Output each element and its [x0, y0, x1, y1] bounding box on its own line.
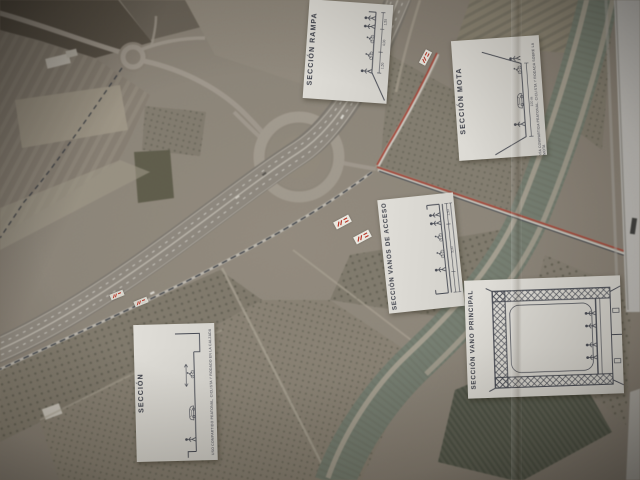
roadway-section-drawing — [146, 323, 209, 461]
truss-outline — [486, 284, 624, 392]
main-span-truss-drawing — [477, 275, 624, 398]
cyclist-icon — [513, 66, 521, 74]
pedestrian-icon — [435, 267, 446, 272]
pedestrian-icon — [430, 221, 441, 226]
inset-seccion: SECCIÓN USO COMPARTIDO PEATONAL, CICLIST… — [133, 323, 218, 462]
pedestrian-icon — [585, 311, 596, 316]
pedestrian-icon — [585, 324, 596, 329]
access-span-section-drawing: 1,50 5,00 — [390, 192, 465, 312]
cyclist-icon — [365, 51, 373, 59]
height-arrow — [184, 364, 188, 386]
pedestrian-icon — [514, 122, 525, 127]
aerial-plan-photo: SECCIÓN RAMPA 1,50 4,00 1,50 SECCIÓN MOT… — [0, 0, 640, 480]
pedestrian-icon — [364, 16, 375, 21]
dimension-label: 5,00 — [450, 246, 455, 253]
inset-seccion-mota: SECCIÓN MOTA 100 m VÍA COMPARTIDA PEATON… — [451, 35, 547, 161]
pedestrian-icon — [586, 355, 597, 360]
cyclist-icon — [187, 370, 194, 378]
cyclist-icon — [436, 250, 444, 258]
pedestrian-icon — [586, 342, 597, 347]
dimension-label: 1,50 — [384, 19, 388, 26]
dimension-label: 1,50 — [446, 209, 451, 216]
cyclist-icon — [435, 233, 443, 241]
inset-seccion-vanos-de-acceso: SECCIÓN VANOS DE ACCESO 1,50 5,00 — [377, 192, 464, 313]
cyclist-icon — [366, 35, 374, 43]
inset-seccion-rampa: SECCIÓN RAMPA 1,50 4,00 1,50 — [303, 0, 394, 104]
car-icon — [189, 406, 195, 420]
car-icon — [517, 93, 524, 108]
pedestrian-icon — [185, 437, 196, 441]
dimension-label: 4,00 — [382, 39, 386, 46]
pedestrian-icon — [429, 212, 440, 217]
pedestrian-icon — [364, 24, 375, 29]
ramp-section-drawing: 1,50 4,00 1,50 — [316, 0, 394, 104]
pedestrian-icon — [361, 69, 372, 74]
inset-seccion-vano-principal: SECCIÓN VANO PRINCIPAL — [464, 275, 624, 398]
embankment-line — [482, 50, 527, 156]
mota-section-drawing: 100 m — [464, 36, 538, 160]
dimension-label: 1,50 — [381, 62, 385, 69]
